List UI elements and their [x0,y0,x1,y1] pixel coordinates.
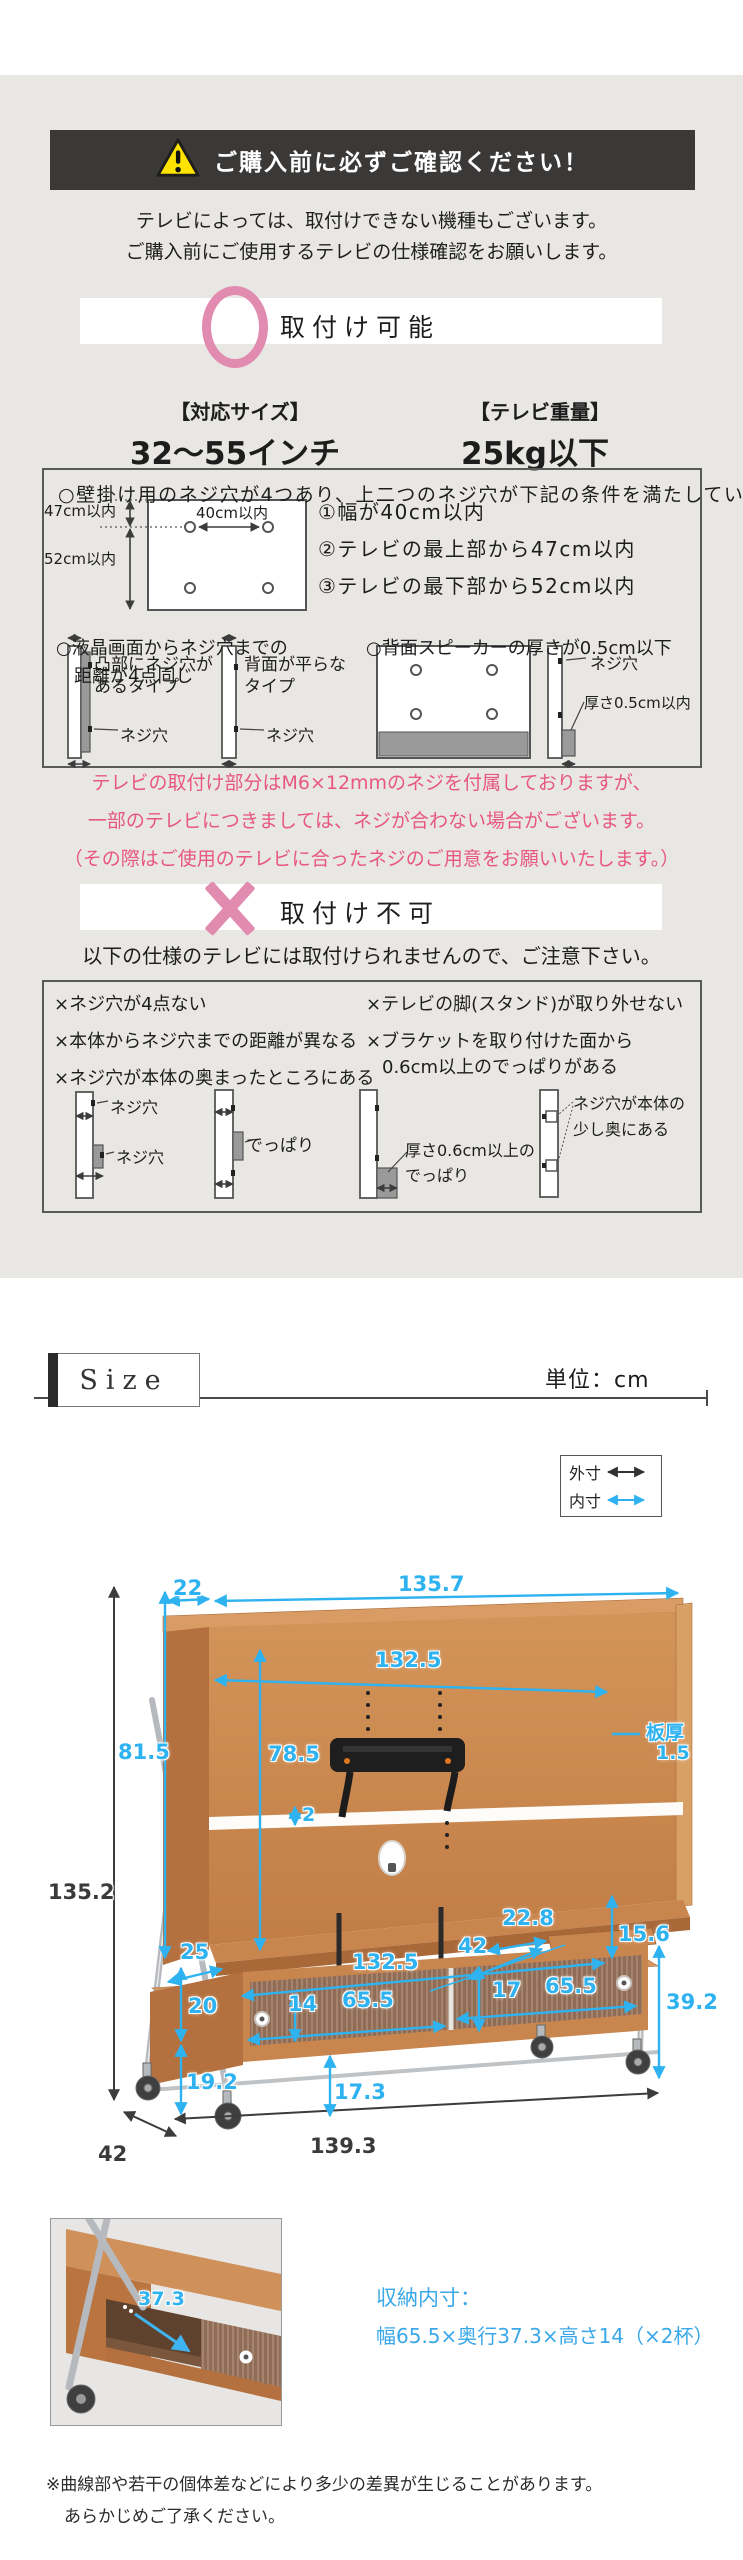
dim-top-width: 135.7 [398,1572,464,1596]
ng-item-4: ×テレビの脚(スタンド)が取り外せない [366,990,683,1016]
ng-item-5a: ×ブラケットを取り付けた面から [366,1027,633,1053]
dim-inner-width: 132.5 [375,1648,441,1672]
storage-photo-drawing [51,2219,281,2425]
ng-screw-label-2: ネジ穴 [116,1144,164,1168]
dim-door-right-h: 17 [492,1978,521,2002]
ng-item-2: ×本体からネジ穴までの距離が異なる [54,1027,357,1053]
dim-shelf-depth: 22.8 [502,1906,554,1930]
dim-floor-clearance: 17.3 [334,2080,386,2104]
dim-panel-height: 78.5 [268,1742,320,1766]
label-40cm: 40cm以内 [196,502,268,523]
circle-ok-icon [202,286,268,368]
dim-strip-adjust: 2 [302,1804,315,1826]
recess-label-1: ネジ穴が本体の [573,1090,685,1114]
not-mountable-lead: 以下の仕様のテレビには取付けられませんので、ご注意下さい。 [0,940,743,969]
storage-label: 収納内寸： [376,2282,481,2312]
intro-text: テレビによっては、取付けできない機種もございます。 ご購入前にご使用するテレビの… [0,206,743,269]
outer-arrow-icon [603,1466,649,1478]
size-rule-tick [706,1390,708,1406]
dim-lower-inner-width: 132.5 [352,1950,418,1974]
screw-hole-label-2: ネジ穴 [266,722,314,746]
dim-upper-height: 81.5 [118,1740,170,1764]
label-52cm: 52cm以内 [44,548,116,569]
dim-top-depth: 22 [173,1576,202,1600]
dim-cabinet-right-h: 39.2 [666,1990,718,2014]
dim-total-height: 135.2 [48,1880,114,1904]
ng-item-3: ×ネジ穴が本体の奥まったところにある [54,1064,374,1090]
condition-2: ②テレビの最上部から47cm以内 [318,533,636,562]
intro-line-2: ご購入前にご使用するテレビの仕様確認をお願いします。 [0,237,743,268]
ng-screw-label-1: ネジ穴 [110,1094,158,1118]
size-header-tab [48,1353,58,1407]
dimension-legend: 外寸 内寸 [560,1455,662,1517]
spec-weight-value: 25kg以下 [415,428,655,473]
dim-cabinet-left-h: 20 [188,1994,217,2018]
warning-banner-title: ご購入前に必ずご確認ください！ [214,143,589,177]
dim-photo-depth: 37.3 [138,2288,185,2310]
footnote-1: ※曲線部や若干の個体差などにより多少の差異が生じることがあります。 [46,2470,602,2495]
size-header: Size [48,1353,200,1407]
dim-door-left-h: 14 [288,1992,317,2016]
dim-leg-height: 19.2 [186,2070,238,2094]
inner-arrow-icon [603,1494,649,1506]
recess-label-2: 少し奥にある [573,1116,669,1140]
storage-detail-photo [50,2218,282,2426]
dim-lip: 25 [180,1940,209,1964]
type-flat-2: タイプ [244,672,295,697]
not-mountable-heading: 取付け不可 [280,894,440,930]
dim-board-thickness: 1.5 [656,1742,690,1764]
dim-door-left-w: 65.5 [342,1988,394,2012]
dim-door-right-w: 65.5 [545,1974,597,1998]
screw-note-line-2: 一部のテレビにつきましては、ネジが合わない場合がございます。 [0,802,743,840]
footnote-2: あらかじめご了承ください。 [64,2502,285,2527]
label-47cm: 47cm以内 [44,500,116,521]
condition-1: ①幅が40cm以内 [318,496,485,525]
x-mark-icon [198,876,262,940]
legend-outer-label: 外寸 [569,1460,601,1484]
screw-note-line-1: テレビの取付け部分はM6×12mmのネジを付属しておりますが、 [0,764,743,802]
thickness-label: 厚さ0.5cm以内 [584,692,691,713]
dim-depth: 42 [98,2142,127,2166]
screw-note: テレビの取付け部分はM6×12mmのネジを付属しておりますが、 一部のテレビにつ… [0,764,743,878]
size-title: Size [79,1365,168,1396]
spec-size-label: 【対応サイズ】 [120,396,360,425]
spec-weight-label: 【テレビ重量】 [420,396,660,425]
unit-label: 単位：cm [545,1362,650,1394]
screw-note-line-3: （その際はご使用のテレビに合ったネジのご用意をお願いいたします。） [0,840,743,878]
dim-board-label: 板厚 [646,1718,684,1745]
dim-total-width: 139.3 [310,2134,376,2158]
legend-inner-label: 内寸 [569,1488,601,1512]
screw-hole-label-3: ネジ穴 [590,650,638,674]
spec-size-value: 32～55インチ [115,428,355,473]
ng-item-1: ×ネジ穴が4点ない [54,990,207,1016]
warning-banner: ご購入前に必ずご確認ください！ [50,130,695,190]
storage-value: 幅65.5×奥行37.3×高さ14（×2杯） [376,2320,714,2349]
type-convex-2: あるタイプ [94,672,179,697]
condition-3: ③テレビの最下部から52cm以内 [318,570,636,599]
thick-protrusion-2: でっぱり [405,1162,469,1186]
mountable-heading: 取付け可能 [280,308,440,344]
dim-gap: 15.6 [618,1922,670,1946]
warning-icon [156,138,200,182]
protrusion-label: でっぱり [246,1131,314,1156]
intro-line-1: テレビによっては、取付けできない機種もございます。 [0,206,743,237]
screw-hole-label-1: ネジ穴 [120,722,168,746]
thick-protrusion-1: 厚さ0.6cm以上の [405,1137,535,1161]
dim-lower-top-depth: 42 [458,1934,487,1958]
ng-item-5b: 0.6cm以上のでっぱりがある [382,1053,618,1079]
